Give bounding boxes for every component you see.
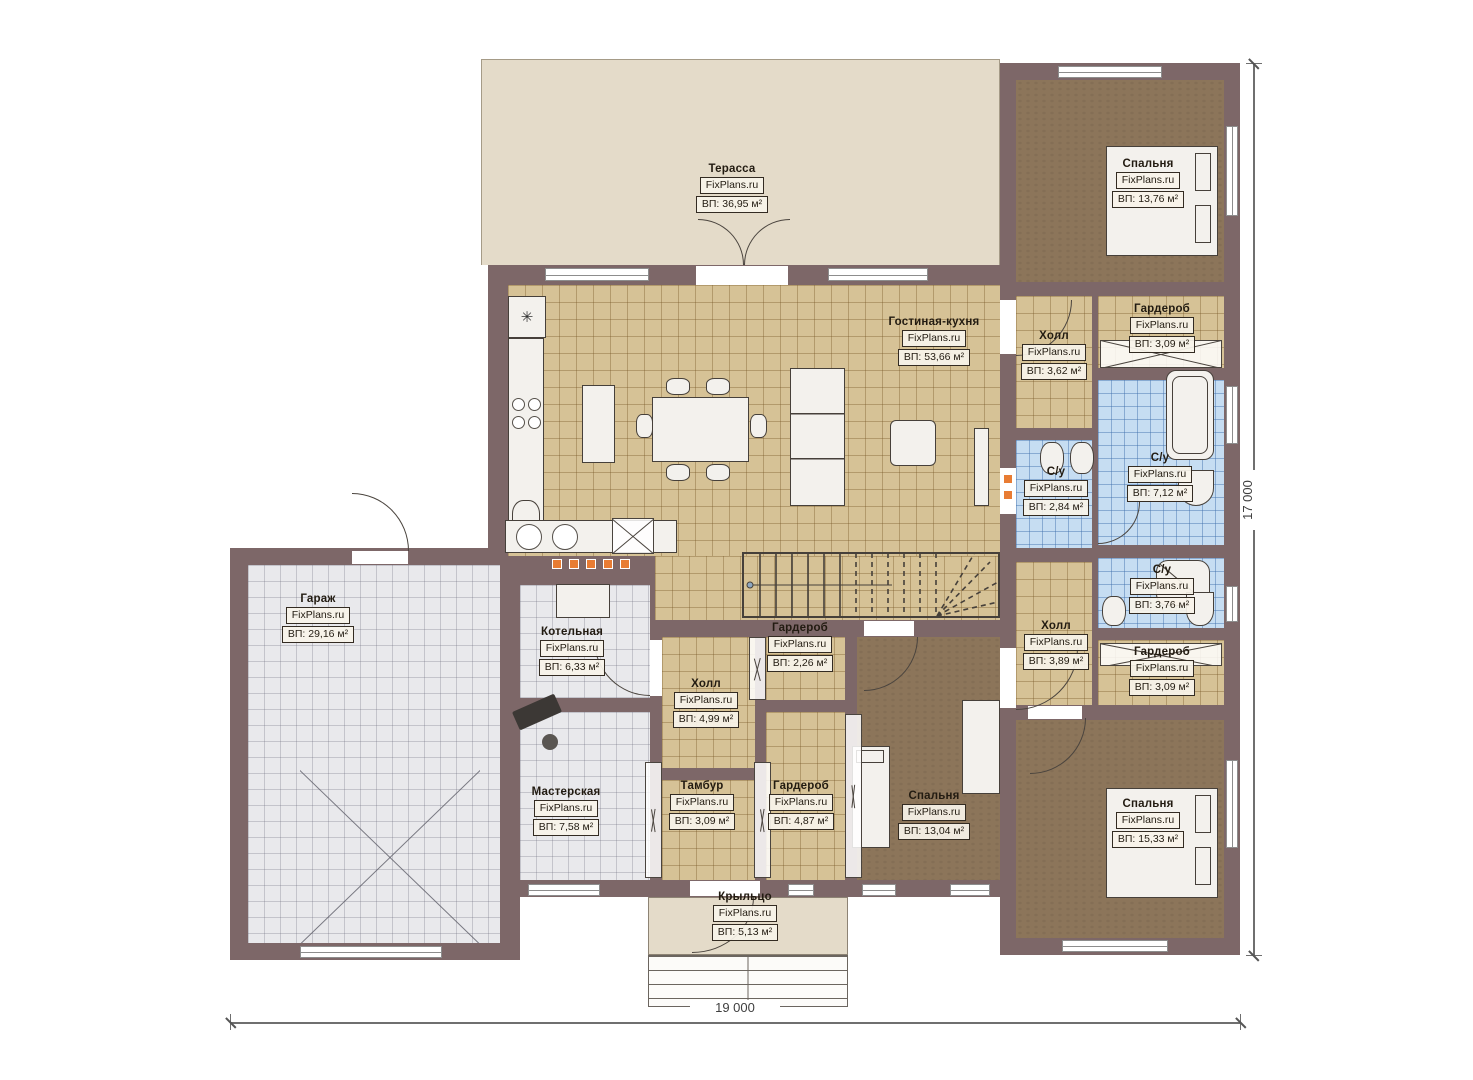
room-label-garage: Гараж FixPlans.ru ВП: 29,16 м² — [262, 593, 374, 643]
room-label-living-kitchen: Гостиная-кухня FixPlans.ru ВП: 53,66 м² — [872, 316, 996, 366]
stove-burner-icon — [512, 398, 525, 411]
spotlight-icon — [586, 559, 596, 569]
spotlight-icon — [552, 559, 562, 569]
room-brand: FixPlans.ru — [540, 640, 605, 657]
dimension-height-label: 17 000 — [1240, 470, 1256, 530]
room-name: Гардероб — [1134, 303, 1190, 315]
sink-bowl-icon — [516, 524, 542, 550]
room-area: ВП: 13,04 м² — [898, 823, 970, 840]
room-area: ВП: 36,95 м² — [696, 196, 768, 213]
armchair-icon — [890, 420, 936, 466]
room-brand: FixPlans.ru — [286, 607, 351, 624]
door-opening-garage-entry — [352, 551, 408, 564]
room-name: Гараж — [300, 593, 335, 605]
room-area: ВП: 2,84 м² — [1023, 499, 1089, 516]
room-label-wc-376: С/у FixPlans.ru ВП: 3,76 м² — [1106, 564, 1218, 614]
pillow-icon — [1195, 847, 1211, 885]
chair-icon — [666, 464, 690, 481]
window — [1058, 66, 1162, 78]
room-label-workshop: Мастерская FixPlans.ru ВП: 7,58 м² — [510, 786, 622, 836]
boiler-icon — [556, 584, 610, 618]
room-brand: FixPlans.ru — [769, 794, 834, 811]
room-brand: FixPlans.ru — [1128, 466, 1193, 483]
chair-icon — [750, 414, 767, 438]
room-name: Холл — [691, 678, 721, 690]
window — [1226, 126, 1238, 216]
spotlight-icon — [603, 559, 613, 569]
room-brand: FixPlans.ru — [1130, 317, 1195, 334]
room-label-wardrobe-top: Гардероб FixPlans.ru ВП: 3,09 м² — [1106, 303, 1218, 353]
room-area: ВП: 5,13 м² — [712, 924, 778, 941]
tv-cabinet — [974, 428, 989, 506]
garage-door — [300, 946, 442, 958]
room-label-bedroom-bottom: Спальня FixPlans.ru ВП: 15,33 м² — [1094, 798, 1202, 848]
room-area: ВП: 3,62 м² — [1021, 363, 1087, 380]
room-name: Гардероб — [1134, 646, 1190, 658]
room-brand: FixPlans.ru — [902, 330, 967, 347]
room-label-hall-499: Холл FixPlans.ru ВП: 4,99 м² — [654, 678, 758, 728]
wall-marker-icon — [1003, 474, 1013, 484]
room-label-terrace: Терасса FixPlans.ru ВП: 36,95 м² — [672, 163, 792, 213]
room-name: Спальня — [1122, 158, 1173, 170]
pillow-icon — [1195, 205, 1211, 243]
window — [862, 884, 896, 896]
room-area: ВП: 3,09 м² — [1129, 336, 1195, 353]
room-brand: FixPlans.ru — [674, 692, 739, 709]
chair-icon — [666, 378, 690, 395]
room-name: Крыльцо — [718, 891, 772, 903]
room-label-wardrobe-487: Гардероб FixPlans.ru ВП: 4,87 м² — [750, 780, 852, 830]
room-label-hall-362: Холл FixPlans.ru ВП: 3,62 м² — [1012, 330, 1096, 380]
room-area: ВП: 3,09 м² — [669, 813, 735, 830]
chair-icon — [706, 464, 730, 481]
room-name: Холл — [1039, 330, 1069, 342]
shelf-unit — [790, 368, 845, 506]
room-brand: FixPlans.ru — [1116, 812, 1181, 829]
room-name: С/у — [1153, 564, 1172, 576]
room-brand: FixPlans.ru — [713, 905, 778, 922]
room-brand: FixPlans.ru — [1116, 172, 1181, 189]
room-brand: FixPlans.ru — [1130, 660, 1195, 677]
dimension-width-label: 19 000 — [690, 1000, 780, 1016]
room-area: ВП: 4,87 м² — [768, 813, 834, 830]
room-brand: FixPlans.ru — [902, 804, 967, 821]
window — [545, 268, 649, 281]
room-label-vestibule: Тамбур FixPlans.ru ВП: 3,09 м² — [650, 780, 754, 830]
room-name: С/у — [1047, 466, 1066, 478]
room-terrace-floor — [481, 59, 1000, 265]
room-name: С/у — [1151, 452, 1170, 464]
room-name: Спальня — [908, 790, 959, 802]
room-area: ВП: 3,09 м² — [1129, 679, 1195, 696]
room-area: ВП: 3,89 м² — [1023, 653, 1089, 670]
room-label-wardrobe-226: Гардероб FixPlans.ru ВП: 2,26 м² — [750, 622, 850, 672]
dining-table — [652, 397, 749, 462]
room-name: Гардероб — [772, 622, 828, 634]
kitchen-island — [582, 385, 615, 463]
window — [1226, 760, 1238, 848]
window — [1062, 940, 1168, 952]
window — [528, 884, 600, 896]
room-brand: FixPlans.ru — [670, 794, 735, 811]
room-area: ВП: 6,33 м² — [539, 659, 605, 676]
room-label-boiler: Котельная FixPlans.ru ВП: 6,33 м² — [516, 626, 628, 676]
room-area: ВП: 2,26 м² — [767, 655, 833, 672]
room-brand: FixPlans.ru — [1024, 634, 1089, 651]
room-area: ВП: 7,58 м² — [533, 819, 599, 836]
chair-icon — [636, 414, 653, 438]
room-area: ВП: 7,12 м² — [1127, 485, 1193, 502]
snowflake-icon: ✳ — [509, 308, 545, 326]
room-area: ВП: 53,66 м² — [898, 349, 970, 366]
desk-chair-icon — [542, 734, 558, 750]
spotlight-icon — [569, 559, 579, 569]
room-label-wc-284: С/у FixPlans.ru ВП: 2,84 м² — [1018, 466, 1094, 516]
window — [1226, 586, 1238, 622]
wardrobe-cabinet — [962, 700, 1000, 794]
room-area: ВП: 29,16 м² — [282, 626, 354, 643]
room-name: Холл — [1041, 620, 1071, 632]
room-brand: FixPlans.ru — [534, 800, 599, 817]
window — [950, 884, 990, 896]
room-brand: FixPlans.ru — [700, 177, 765, 194]
room-name: Тамбур — [681, 780, 724, 792]
dimension-line-width — [230, 1022, 1240, 1024]
room-name: Гостиная-кухня — [889, 316, 980, 328]
stove-burner-icon — [528, 416, 541, 429]
room-label-bath-712: С/у FixPlans.ru ВП: 7,12 м² — [1108, 452, 1212, 502]
room-area: ВП: 13,76 м² — [1112, 191, 1184, 208]
room-area: ВП: 3,76 м² — [1129, 597, 1195, 614]
room-name: Спальня — [1122, 798, 1173, 810]
room-label-bedroom-top: Спальня FixPlans.ru ВП: 13,76 м² — [1094, 158, 1202, 208]
room-name: Мастерская — [532, 786, 601, 798]
room-area: ВП: 4,99 м² — [673, 711, 739, 728]
stove-burner-icon — [528, 398, 541, 411]
room-label-wardrobe-bottom: Гардероб FixPlans.ru ВП: 3,09 м² — [1106, 646, 1218, 696]
door-opening-terrace — [696, 266, 788, 285]
spotlight-icon — [620, 559, 630, 569]
room-label-hall-389: Холл FixPlans.ru ВП: 3,89 м² — [1014, 620, 1098, 670]
floor-plan: ✳ — [0, 0, 1473, 1080]
sink-bowl-icon — [552, 524, 578, 550]
garage-parking-cross — [300, 770, 480, 943]
chair-icon — [706, 378, 730, 395]
wall-marker-icon — [1003, 490, 1013, 500]
door-arc-garage-entry — [352, 493, 409, 551]
window — [1226, 386, 1238, 444]
stove-burner-icon — [512, 416, 525, 429]
room-brand: FixPlans.ru — [768, 636, 833, 653]
room-label-porch: Крыльцо FixPlans.ru ВП: 5,13 м² — [686, 891, 804, 941]
room-brand: FixPlans.ru — [1022, 344, 1087, 361]
fridge-icon: ✳ — [508, 296, 546, 338]
room-name: Терасса — [709, 163, 756, 175]
room-brand: FixPlans.ru — [1024, 480, 1089, 497]
room-name: Котельная — [541, 626, 603, 638]
cooktop-icon — [612, 518, 654, 554]
room-brand: FixPlans.ru — [1130, 578, 1195, 595]
room-label-bedroom-13: Спальня FixPlans.ru ВП: 13,04 м² — [876, 790, 992, 840]
window — [828, 268, 928, 281]
stairs — [742, 552, 1000, 618]
bathtub-icon — [1166, 370, 1214, 460]
room-area: ВП: 15,33 м² — [1112, 831, 1184, 848]
door-opening-bedroom-13 — [864, 621, 914, 636]
room-name: Гардероб — [773, 780, 829, 792]
